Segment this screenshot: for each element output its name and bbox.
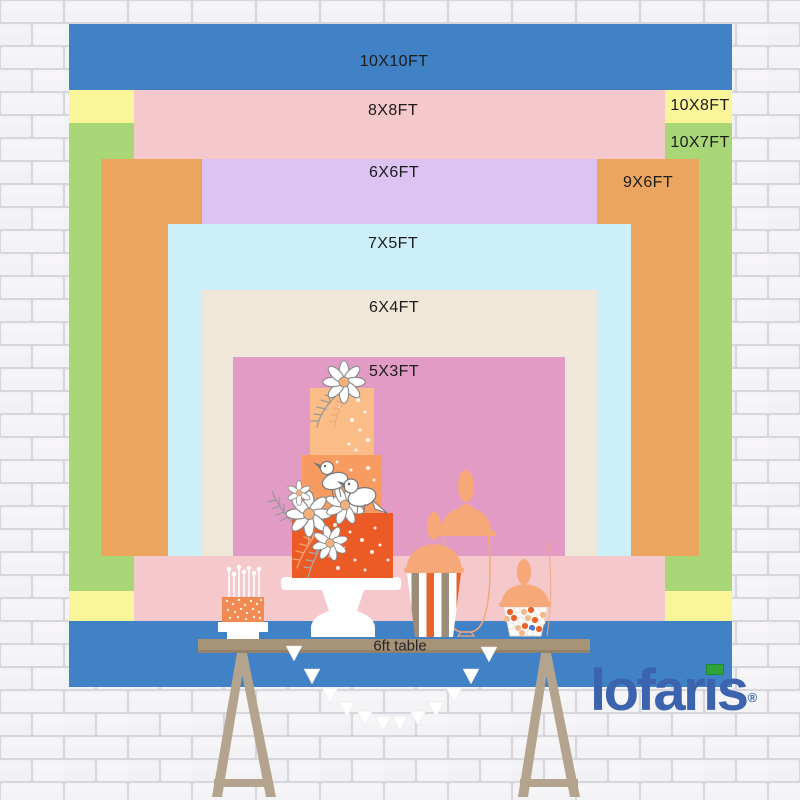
logo-green-flag-icon	[706, 664, 724, 675]
candy-cup-jar-icon	[499, 559, 551, 636]
cake-stand	[281, 577, 401, 590]
table-legs	[212, 653, 580, 797]
candle-cake-icon	[218, 565, 268, 641]
backdrop-size-chart-image: 10X10FT10X8FT10X7FT8X8FT9X6FT6X6FT7X5FT6…	[0, 0, 800, 800]
brand-logo: lofaris®	[590, 661, 800, 723]
table-size-label: 6ft table	[373, 638, 426, 655]
bunting-flags-decoration	[286, 646, 497, 731]
registered-trademark-symbol: ®	[748, 690, 758, 705]
